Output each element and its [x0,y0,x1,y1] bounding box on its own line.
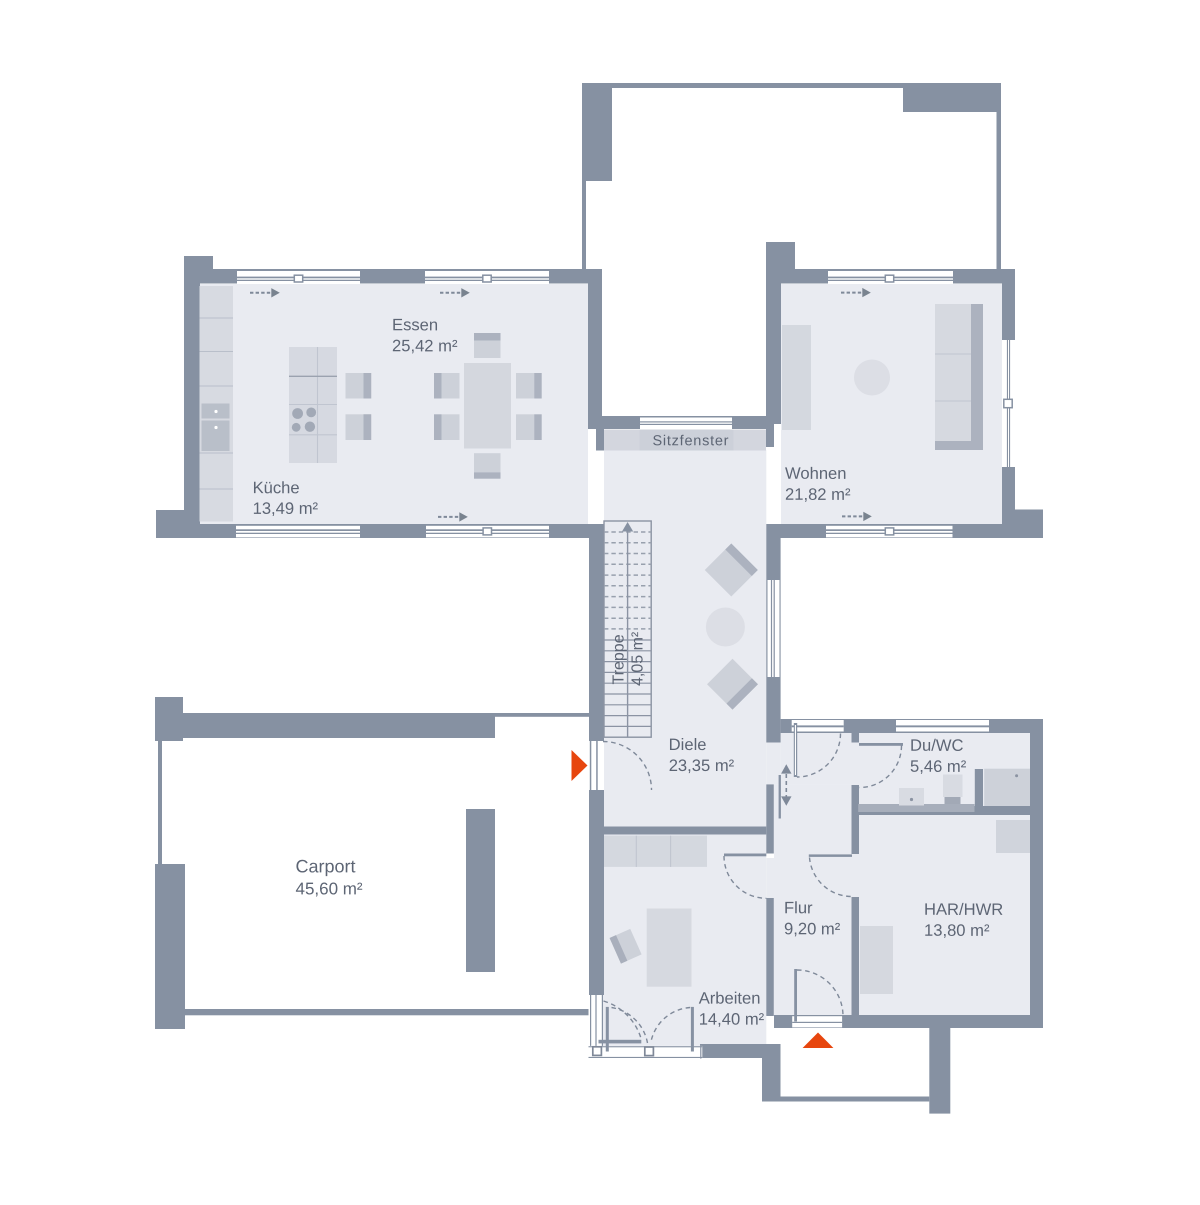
svg-text:9,20 m²: 9,20 m² [784,919,841,938]
svg-text:4,05 m²: 4,05 m² [630,631,647,686]
svg-text:13,80 m²: 13,80 m² [924,921,990,940]
svg-text:Carport: Carport [295,856,355,876]
svg-text:Arbeiten: Arbeiten [699,989,761,1008]
svg-text:13,49 m²: 13,49 m² [253,499,319,518]
svg-text:Wohnen: Wohnen [785,464,847,483]
svg-text:23,35 m²: 23,35 m² [669,756,735,775]
svg-text:14,40 m²: 14,40 m² [699,1010,765,1029]
svg-text:Sitzfenster: Sitzfenster [652,433,729,449]
svg-text:Diele: Diele [669,735,707,754]
svg-text:Flur: Flur [784,898,813,917]
svg-text:Küche: Küche [253,478,300,497]
svg-text:5,46 m²: 5,46 m² [910,757,967,776]
svg-text:HAR/HWR: HAR/HWR [924,900,1003,919]
svg-text:25,42 m²: 25,42 m² [392,336,458,355]
svg-text:Essen: Essen [392,315,438,334]
svg-text:45,60 m²: 45,60 m² [295,879,362,898]
svg-text:Du/WC: Du/WC [910,736,963,755]
svg-text:21,82 m²: 21,82 m² [785,485,851,504]
svg-text:Treppe: Treppe [611,634,628,684]
